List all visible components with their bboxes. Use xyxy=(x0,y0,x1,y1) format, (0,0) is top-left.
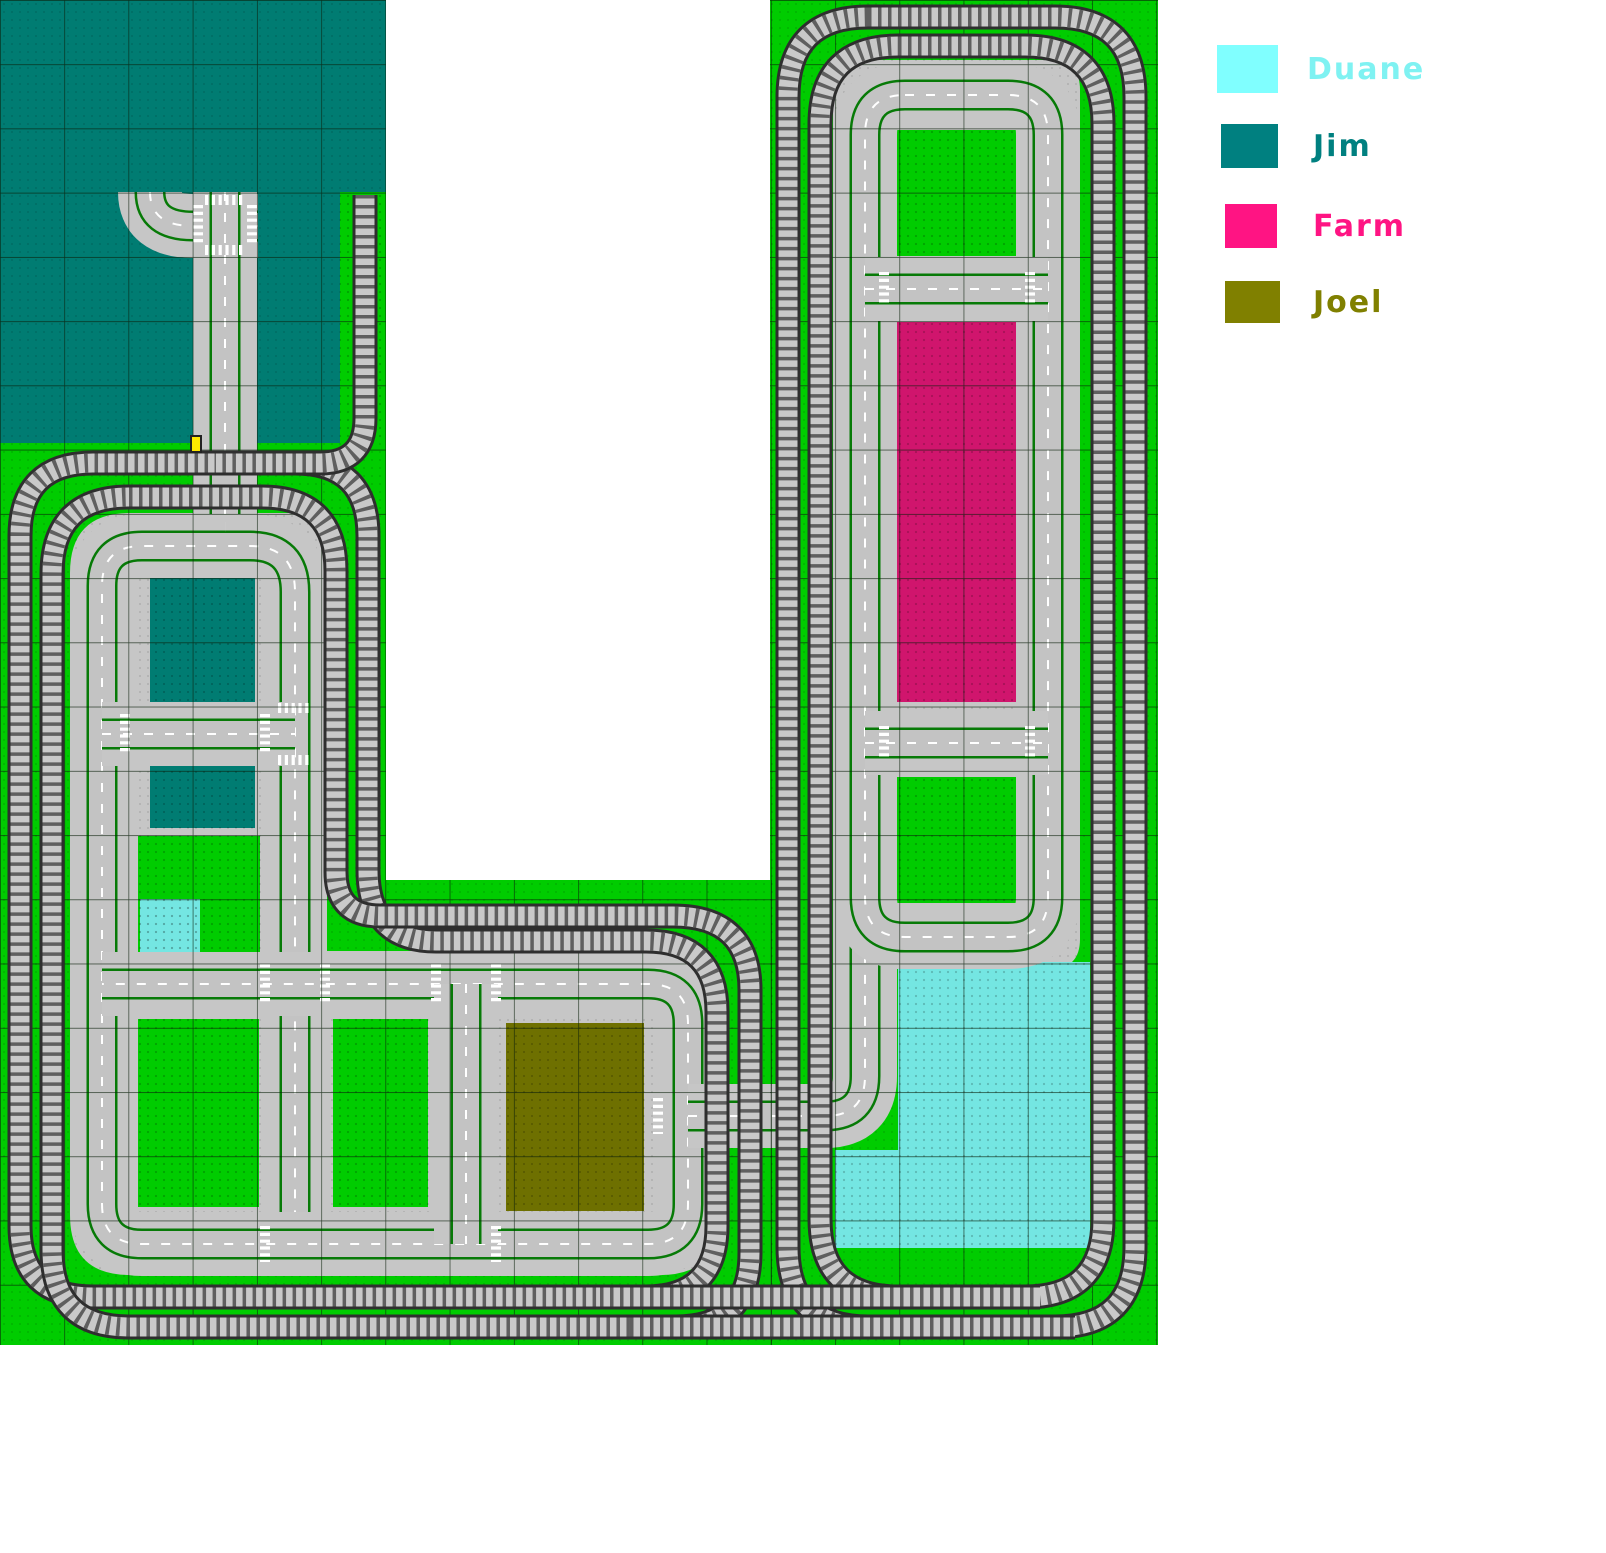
layout-canvas xyxy=(0,0,1606,1553)
track-layout-plan: DuaneJimFarmJoel xyxy=(0,0,1606,1553)
railway-signal xyxy=(191,436,201,452)
